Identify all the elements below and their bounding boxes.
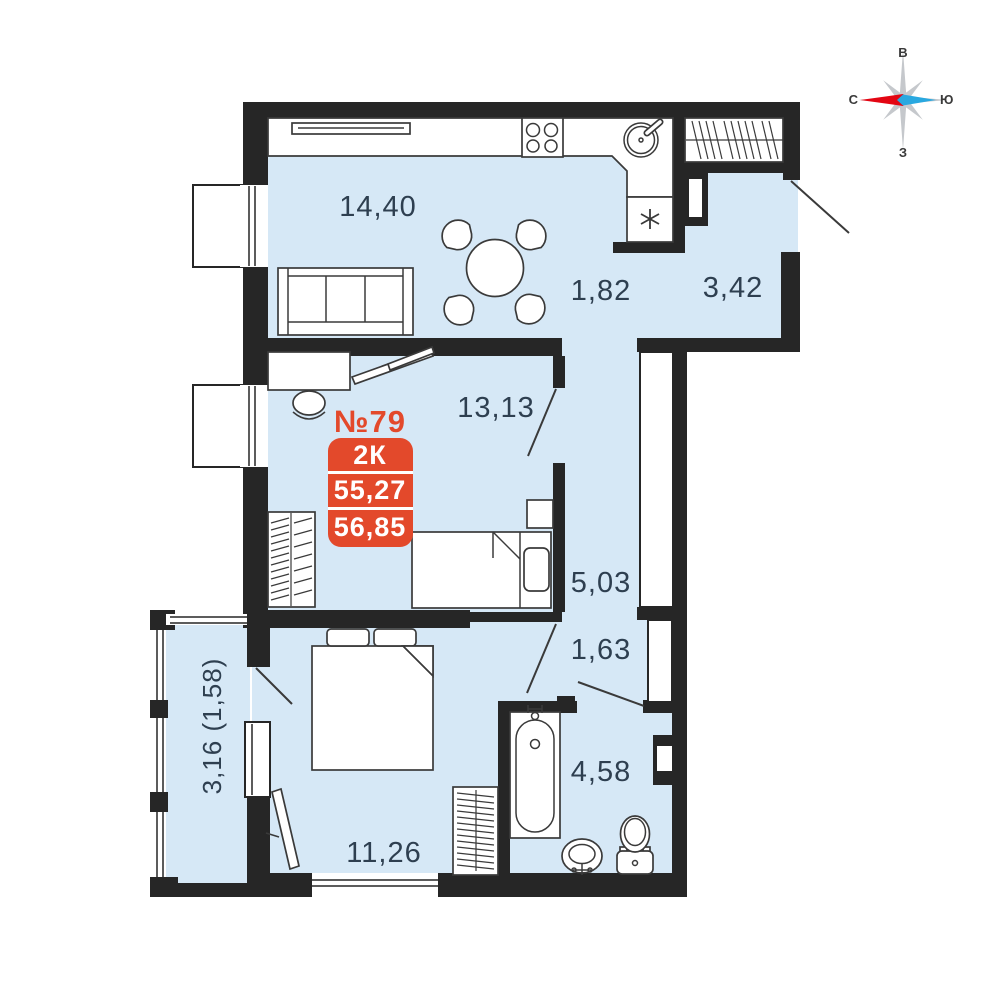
balcony-parapet: [150, 883, 250, 897]
entry-closet-icon: [685, 118, 783, 162]
label-bathroom: 4,58: [571, 756, 631, 788]
dining-table-icon: [467, 240, 524, 297]
window-ledge: [193, 385, 243, 467]
label-room: 13,13: [457, 392, 535, 424]
apartment-badge: №79 2К 55,27 56,85: [328, 404, 413, 547]
window-ledge: [193, 185, 243, 267]
sofa-icon: [278, 268, 413, 335]
window-bedroom: [312, 873, 438, 897]
double-bed-icon: [312, 629, 433, 770]
nightstand-icon: [527, 500, 553, 528]
single-bed-icon: [412, 532, 551, 608]
pillow-icon: [327, 629, 369, 646]
window-balcony-block: [245, 722, 270, 797]
window-kitchen: [240, 185, 268, 267]
wardrobe-bedroom-icon: [453, 787, 498, 875]
pillow-icon: [524, 548, 549, 591]
duct: [688, 178, 703, 218]
compass-rose: В Ю З С: [849, 45, 954, 160]
vent-shaft: [640, 352, 673, 607]
label-entry-hall: 3,42: [703, 272, 763, 304]
compass-south-arrow-icon: [897, 95, 936, 106]
badge-area1: 55,27: [334, 475, 407, 505]
bathtub-icon: [510, 705, 560, 838]
apartment-number: №79: [334, 404, 406, 439]
label-corridor2: 1,63: [571, 634, 631, 666]
window-room: [240, 385, 268, 467]
balcony-pillar: [150, 792, 168, 812]
label-balcony: 3,16 (1,58): [197, 658, 227, 795]
vent-shaft: [648, 620, 672, 702]
floor-plan-page: 14,40 1,82 3,42 13,13 5,03 1,63 4,58 11,…: [0, 0, 1000, 1000]
label-kitchen-living: 14,40: [339, 191, 417, 223]
pillow-icon: [374, 629, 416, 646]
desk-icon: [268, 352, 350, 390]
entry-door-swing: [791, 181, 849, 233]
bathroom-niche: [657, 746, 672, 771]
label-hall-segment: 1,82: [571, 275, 631, 307]
floor-plan: 14,40 1,82 3,42 13,13 5,03 1,63 4,58 11,…: [0, 0, 1000, 1000]
compass-west-letter: З: [899, 145, 907, 160]
compass-south-letter: Ю: [940, 92, 953, 107]
stove-icon: [522, 118, 563, 157]
compass-north-letter: С: [849, 92, 859, 107]
badge-room-type: 2К: [353, 440, 387, 470]
wardrobe-room-icon: [268, 512, 315, 607]
label-corridor: 5,03: [571, 567, 631, 599]
label-bedroom: 11,26: [346, 837, 421, 869]
desk-chair-icon: [293, 391, 325, 419]
compass-east-letter: В: [898, 45, 907, 60]
balcony-pillar: [150, 700, 168, 718]
badge-area2: 56,85: [334, 512, 407, 542]
